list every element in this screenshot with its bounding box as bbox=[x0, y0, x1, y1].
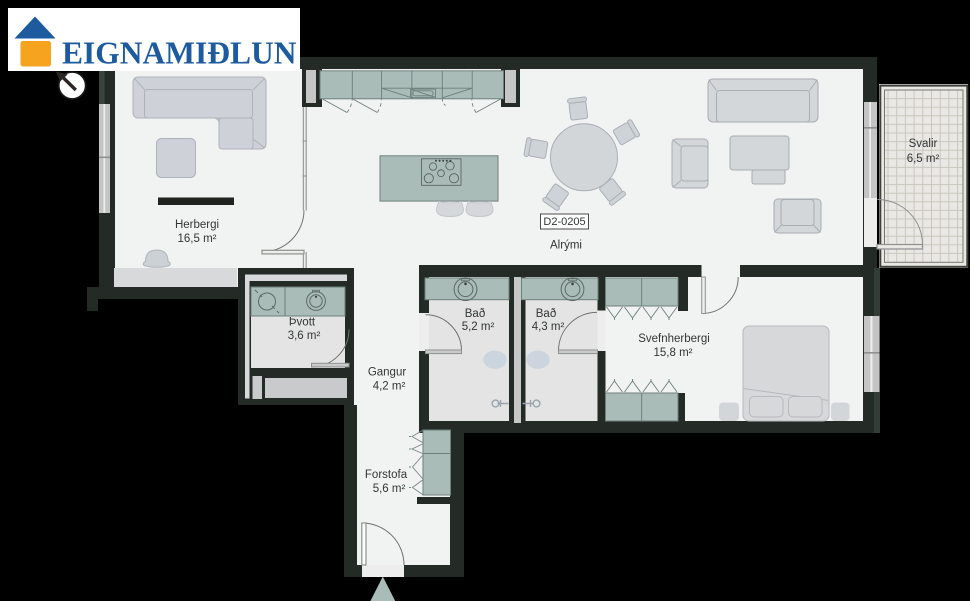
svg-text:3,6 m²: 3,6 m² bbox=[288, 330, 321, 342]
svg-text:Svefnherbergi: Svefnherbergi bbox=[638, 333, 710, 345]
svg-text:D2-0205: D2-0205 bbox=[543, 216, 585, 228]
svg-text:Herbergi: Herbergi bbox=[175, 219, 219, 231]
svg-text:Alrými: Alrými bbox=[550, 240, 582, 252]
svg-text:4,3 m²: 4,3 m² bbox=[532, 321, 565, 333]
svg-text:Bað: Bað bbox=[465, 308, 485, 320]
svg-text:Þvott: Þvott bbox=[289, 317, 316, 329]
svg-text:16,5 m²: 16,5 m² bbox=[178, 233, 217, 245]
svg-text:6,5 m²: 6,5 m² bbox=[907, 153, 940, 165]
svg-text:Forstofa: Forstofa bbox=[365, 469, 408, 481]
svg-text:15,8 m²: 15,8 m² bbox=[654, 347, 693, 359]
svg-text:Gangur: Gangur bbox=[368, 367, 407, 379]
svg-text:5,2 m²: 5,2 m² bbox=[462, 321, 495, 333]
svg-text:Bað: Bað bbox=[536, 308, 556, 320]
svg-text:Svalir: Svalir bbox=[909, 138, 938, 150]
svg-text:EIGNAMIÐLUN: EIGNAMIÐLUN bbox=[62, 36, 297, 71]
svg-text:4,2 m²: 4,2 m² bbox=[373, 381, 406, 393]
svg-text:5,6 m²: 5,6 m² bbox=[373, 483, 406, 495]
